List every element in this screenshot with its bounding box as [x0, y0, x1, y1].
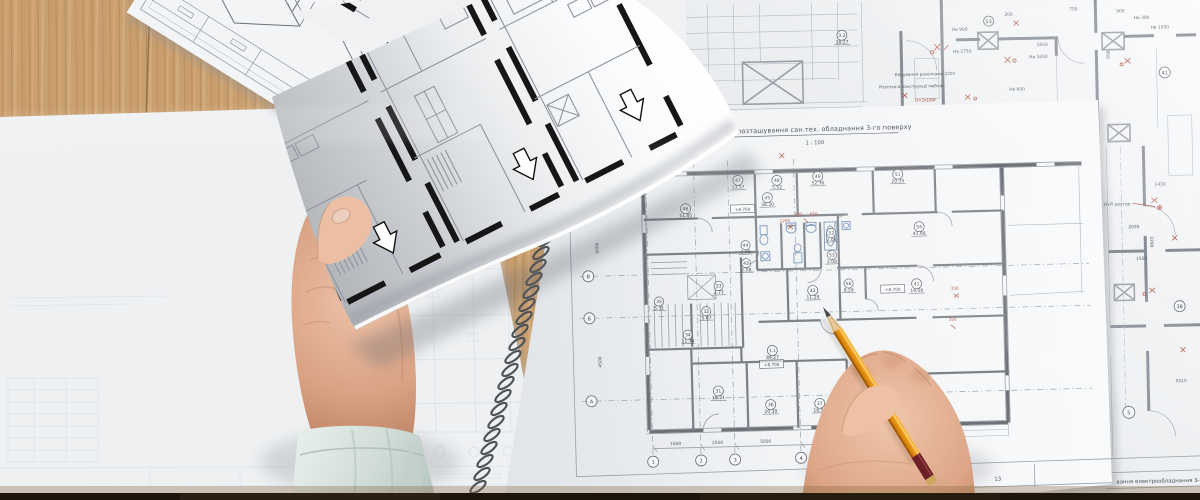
svg-text:+8.700: +8.700 — [735, 207, 751, 212]
svg-text:49: 49 — [815, 174, 821, 180]
dim-text: 1430 — [1154, 181, 1166, 187]
grid-bubble: 53 — [985, 19, 991, 25]
svg-text:2.08: 2.08 — [826, 237, 836, 243]
svg-text:42.68: 42.68 — [913, 231, 926, 237]
grid-bubble: 38 — [1176, 304, 1182, 310]
svg-text:36: 36 — [768, 402, 774, 408]
svg-text:8.29: 8.29 — [844, 287, 854, 293]
svg-text:51: 51 — [895, 172, 901, 178]
grid-bubble: 5 — [1127, 410, 1130, 416]
svg-text:3.2: 3.2 — [838, 33, 846, 39]
axis-number: 2 — [700, 458, 703, 464]
dim-text: 2500 — [712, 440, 724, 446]
mount-height: Нв 1650 — [1029, 54, 1048, 60]
axis-number: 3 — [733, 457, 736, 463]
grid-bubble: 41 — [1162, 70, 1168, 76]
svg-text:+8.700: +8.700 — [885, 287, 901, 292]
svg-text:31: 31 — [715, 388, 721, 394]
mount-height: Нв 2750 — [953, 49, 972, 55]
svg-text:53: 53 — [829, 252, 835, 258]
svg-text:5.87: 5.87 — [701, 315, 711, 321]
sheet-number: 13 — [994, 477, 1001, 483]
dim-text: 1550 — [1136, 256, 1148, 262]
svg-text:42: 42 — [810, 288, 816, 294]
red-dim: 350 — [949, 317, 957, 322]
svg-text:44: 44 — [743, 243, 749, 249]
svg-text:48: 48 — [774, 178, 780, 184]
svg-text:5.52: 5.52 — [772, 184, 782, 190]
svg-text:2.08: 2.08 — [741, 249, 751, 255]
mount-height: Нв 1050 — [1151, 24, 1170, 30]
red-dim: 1200 — [780, 218, 791, 223]
lamp-label: О=2х18W — [915, 97, 936, 102]
axis-number: 4 — [799, 456, 802, 462]
svg-text:2.08: 2.08 — [827, 259, 837, 265]
svg-text:2.77: 2.77 — [714, 290, 724, 296]
dim-text: 200 — [1004, 12, 1013, 18]
red-dim: 655 — [810, 211, 818, 216]
dim-text: 750 — [1069, 6, 1078, 12]
svg-text:43: 43 — [743, 261, 749, 267]
mount-height: Нв 300 — [1134, 15, 1150, 21]
dim-text: 2200 — [1148, 236, 1154, 248]
plan-scale: 1 : 100 — [805, 140, 825, 147]
svg-text:32: 32 — [703, 309, 709, 315]
svg-text:52.76: 52.76 — [811, 180, 824, 186]
dim-text: 1650 — [1036, 42, 1048, 48]
svg-text:34: 34 — [685, 332, 691, 338]
elevation-tag: +8.700 — [760, 360, 784, 369]
svg-text:18.27: 18.27 — [836, 39, 849, 45]
dim-text: 900 — [1116, 8, 1125, 14]
dim-text: 5010 — [1176, 378, 1188, 384]
svg-text:11.29: 11.29 — [806, 294, 819, 300]
svg-text:20.35: 20.35 — [891, 178, 904, 184]
svg-text:3.1: 3.1 — [769, 348, 777, 354]
svg-text:45: 45 — [764, 195, 770, 201]
svg-text:84.27: 84.27 — [766, 355, 779, 361]
svg-text:56: 56 — [846, 281, 852, 287]
svg-text:54: 54 — [916, 224, 922, 230]
desk-edge — [0, 486, 1200, 500]
svg-text:+8.700: +8.700 — [764, 362, 780, 367]
elevation-tag: +8.700 — [730, 204, 754, 213]
desk-scene: 200 750 900 1650 950 1430 1550 2200 2035… — [0, 0, 1200, 500]
scene-photo: 200 750 900 1650 950 1430 1550 2200 2035… — [0, 0, 1200, 500]
svg-text:5.31: 5.31 — [654, 305, 664, 311]
svg-text:41: 41 — [914, 281, 920, 287]
dim-text: 5000 — [760, 439, 772, 445]
svg-text:33: 33 — [716, 283, 722, 289]
red-dim: 350 — [951, 286, 959, 291]
svg-text:20.39: 20.39 — [764, 409, 777, 415]
elevation-tag: +8.700 — [881, 285, 905, 294]
dim-text: 1600 — [670, 441, 682, 447]
mount-height: Нв 600 — [1009, 86, 1025, 92]
dim-text: 2035 — [1128, 224, 1140, 230]
svg-text:35: 35 — [656, 299, 662, 305]
svg-text:11.74: 11.74 — [682, 339, 695, 345]
svg-text:19.08: 19.08 — [910, 288, 923, 294]
svg-text:2.18: 2.18 — [741, 267, 751, 273]
svg-text:38.30: 38.30 — [761, 202, 774, 208]
mount-height: Нв 900 — [952, 27, 968, 33]
axis-number: 1 — [652, 460, 655, 466]
svg-text:37: 37 — [817, 401, 823, 407]
svg-text:52: 52 — [828, 230, 834, 236]
dim-text: 4500 — [597, 356, 603, 368]
dim-text: 950 — [1104, 50, 1110, 59]
red-dim: 635 — [795, 212, 803, 217]
svg-text:18.21: 18.21 — [712, 395, 725, 401]
